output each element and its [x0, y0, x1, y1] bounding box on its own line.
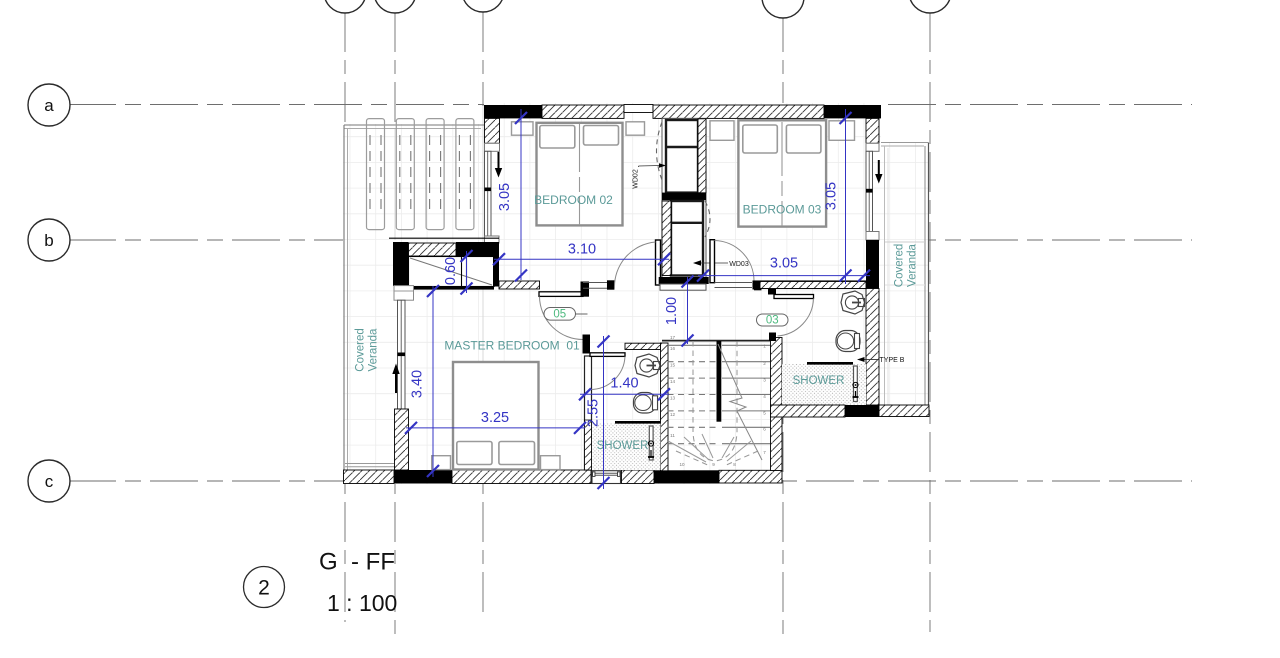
svg-text:2: 2	[763, 361, 766, 366]
svg-text:8: 8	[733, 462, 736, 467]
svg-text:2: 2	[258, 577, 270, 600]
svg-text:3.05: 3.05	[824, 182, 840, 210]
svg-text:Covered: Covered	[894, 244, 906, 287]
svg-text:1 : 100: 1 : 100	[327, 590, 397, 616]
svg-text:BEDROOM 03: BEDROOM 03	[743, 203, 822, 217]
svg-text:15: 15	[670, 363, 676, 368]
svg-text:17: 17	[670, 335, 676, 340]
svg-text:SHOWER: SHOWER	[597, 440, 649, 452]
svg-text:WD03: WD03	[729, 261, 749, 268]
svg-text:5: 5	[763, 411, 766, 416]
svg-text:Veranda: Veranda	[368, 328, 380, 371]
svg-text:6: 6	[763, 427, 766, 432]
svg-text:4: 4	[763, 394, 766, 399]
svg-text:c: c	[45, 472, 54, 491]
svg-text:BEDROOM 02: BEDROOM 02	[534, 193, 613, 207]
svg-text:13: 13	[670, 396, 676, 401]
svg-text:1.40: 1.40	[610, 375, 638, 391]
svg-text:3.25: 3.25	[481, 410, 509, 426]
svg-text:Covered: Covered	[355, 328, 367, 371]
svg-text:3.10: 3.10	[568, 242, 596, 258]
svg-text:1: 1	[763, 344, 766, 349]
svg-text:a: a	[44, 96, 54, 115]
svg-text:1.00: 1.00	[664, 297, 680, 325]
svg-text:9: 9	[712, 462, 715, 467]
svg-text:7: 7	[763, 450, 766, 455]
svg-text:b: b	[44, 231, 53, 250]
svg-text:14: 14	[670, 379, 676, 384]
svg-text:3.40: 3.40	[410, 370, 426, 398]
svg-text:SHOWER: SHOWER	[793, 375, 845, 387]
svg-text:16: 16	[670, 346, 676, 351]
svg-text:3: 3	[763, 378, 766, 383]
svg-text:05: 05	[553, 309, 566, 321]
svg-text:3.05: 3.05	[497, 183, 513, 211]
svg-text:03: 03	[766, 315, 779, 327]
svg-text:Veranda: Veranda	[907, 243, 919, 286]
svg-text:0.60: 0.60	[443, 257, 459, 285]
svg-text:TYPE B: TYPE B	[880, 357, 905, 364]
svg-text:12: 12	[670, 412, 676, 417]
svg-text:G - FF: G - FF	[319, 549, 395, 576]
svg-text:11: 11	[670, 433, 675, 438]
svg-text:2.55: 2.55	[586, 399, 602, 427]
svg-text:MASTER BEDROOM 01: MASTER BEDROOM 01	[444, 339, 580, 353]
svg-text:3.05: 3.05	[770, 256, 798, 272]
svg-text:10: 10	[679, 462, 685, 467]
svg-text:WD02: WD02	[633, 169, 640, 189]
